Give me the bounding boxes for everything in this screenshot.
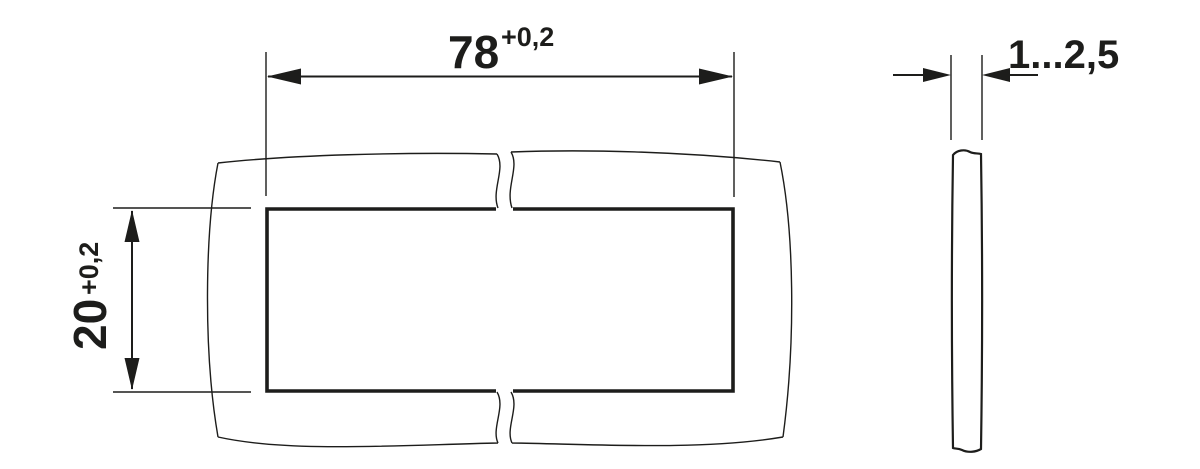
panel-outline: [207, 151, 791, 447]
width-dim-arrowhead-left-icon: [267, 69, 301, 85]
panel-cutout-drawing: 78 +0,2 20 +0,2 1...2,5: [0, 0, 1200, 469]
height-dim-arrowhead-bottom-icon: [125, 358, 140, 390]
thickness-dim-arrowhead-left-icon: [923, 68, 951, 82]
width-dim-arrowhead-right-icon: [699, 69, 733, 85]
thickness-dim-value: 1...2,5: [1008, 33, 1119, 77]
height-dim-arrowhead-top-icon: [125, 210, 140, 242]
extension-lines: [113, 52, 982, 392]
cutout-rectangle: [267, 209, 733, 391]
thickness-dim-arrowhead-right-icon: [982, 68, 1010, 82]
height-dim-tolerance: +0,2: [74, 242, 104, 295]
side-panel-outline: [952, 150, 982, 451]
height-dim-value: 20: [64, 299, 116, 350]
width-dim-tolerance: +0,2: [501, 22, 554, 52]
drawing-canvas: 78 +0,2 20 +0,2 1...2,5: [0, 0, 1200, 469]
linework: [113, 52, 1038, 452]
width-dim-value: 78: [448, 26, 499, 78]
